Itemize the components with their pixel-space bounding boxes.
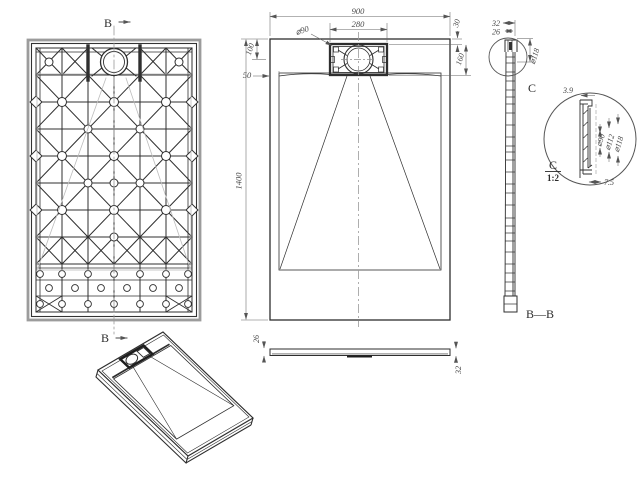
dim-plan-edge-gap: 30 [451,18,462,29]
dim-detail-wall: 3.9 [562,86,573,95]
dim-plan-length: 1400 [234,172,244,190]
side-dimensions [264,341,456,363]
section-label-b-bottom: B [101,331,109,345]
section-ticks [506,57,516,291]
iso-view [96,332,253,463]
drawing-sheet: B B [0,0,640,480]
dim-plan-drain-width: 280 [352,19,366,29]
dim-plan-floor-inset: 50 [243,70,252,80]
dim-plan-drain-depth: 160 [454,52,466,66]
dim-side-thickness-min: 26 [252,335,261,343]
section-view [489,38,527,312]
dim-plan-drain-dia: ⌀90 [294,23,311,37]
dim-detail-foot: 7.5 [604,178,614,187]
section-label-b-top: B [104,16,112,30]
plan-dimensions [241,12,471,320]
detail-scale: 1:2 [547,173,559,183]
plan-view [270,32,450,327]
detail-profile [580,100,596,178]
detail-marker-c: C [528,81,536,95]
section-name: B—B [526,307,554,321]
detail-title: C [549,158,557,172]
dim-side-thickness-max: 32 [454,366,463,375]
dim-section-thickness-min: 26 [492,28,500,37]
side-view [270,349,450,358]
technical-drawing: B B [0,0,640,480]
side-drain-boss [347,356,372,358]
bottom-view: B B [28,16,200,345]
drain-iso [120,346,152,368]
dim-plan-width: 900 [352,6,366,16]
